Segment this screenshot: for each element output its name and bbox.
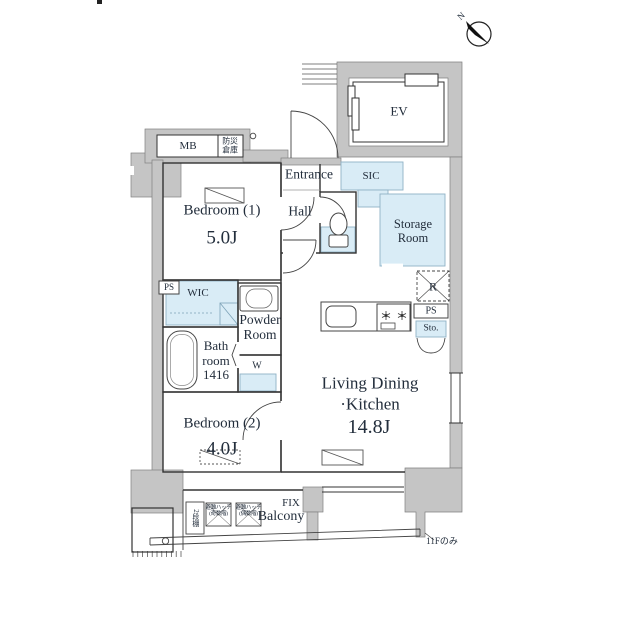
wall-balcony-column-leg [307,512,318,540]
ldk-size: 14.8J [348,416,391,438]
ps-right-label: PS [425,305,436,316]
ldk-label-line1: Living Dining [322,373,419,392]
wic-label: WIC [187,287,208,299]
evac-hatch2-line2: (偶数階) [235,512,261,518]
storage-room-label: Storage Room [384,217,442,245]
fix-label: FIX [282,497,300,509]
washer-pan [240,374,276,391]
window-right-lines [451,373,460,423]
ev-label: EV [390,105,407,120]
refrigerator-label: R [429,280,437,293]
wall-entrance-top [281,158,341,165]
wall-balcony-column [303,487,323,512]
evac-hatch2-label: 避難ハッチ (偶数階) [235,506,261,518]
bedroom2-size: 4.0J [206,438,237,459]
floor-note-label: 11Fのみ [426,536,458,546]
ev-door-2 [352,98,359,130]
kitchen-sink [326,306,356,327]
ev-panel [405,74,438,86]
wall-notch [129,166,134,175]
shelf-label: 2段棚 [191,509,199,527]
door-stop [250,133,256,139]
bedroom1-label: Bedroom (1) [183,203,260,220]
wall-left [152,160,163,480]
drain [162,538,168,544]
ldk-door [283,240,316,273]
washer-label: W [252,360,261,371]
wall-right-lower [450,423,462,468]
bedroom1-size: 5.0J [206,227,237,248]
entrance-door [291,111,338,158]
bathroom-label: Bath room 1416 [195,339,237,383]
powder-room-label: Powder Room [231,312,289,342]
wall-bottom-left-block [131,470,183,513]
bathtub [167,331,197,389]
evac-hatch1-line2: (奇数階) [205,512,231,518]
stove-grill [381,323,395,329]
entrance-label: Entrance [285,166,333,181]
toilet-tank [329,235,348,247]
toilet-bowl [330,213,347,235]
ps-left-label: PS [164,282,174,292]
corridor-hatch-lines [302,64,337,84]
balcony-railing [150,529,420,545]
sic-label: SIC [362,170,379,182]
balcony-label: Balcony [258,509,305,525]
service-space [132,508,173,552]
wall-right-upper [450,157,462,373]
mb-label: MB [179,140,196,152]
ldk-label-line2: ·Kitchen [340,394,399,413]
disaster-storage-line2: 倉庫 [222,146,237,155]
evac-hatch1-label: 避難ハッチ (奇数階) [205,506,231,518]
bedroom2-label: Bedroom (2) [183,416,260,433]
sto-bifold-door [417,338,445,353]
sto-label: Sto. [423,324,438,335]
floorplan-drawing [0,0,640,639]
hall-label: Hall [288,203,311,218]
window-fix [322,487,404,492]
page-mark [97,0,102,4]
north-compass [466,21,491,46]
wall-bottom-right-block [405,468,462,537]
floor-plan: MB 防災 倉庫 EV Entrance Hall SIC Storage Ro… [0,0,640,639]
disaster-storage-label: 防災 倉庫 [222,137,237,154]
